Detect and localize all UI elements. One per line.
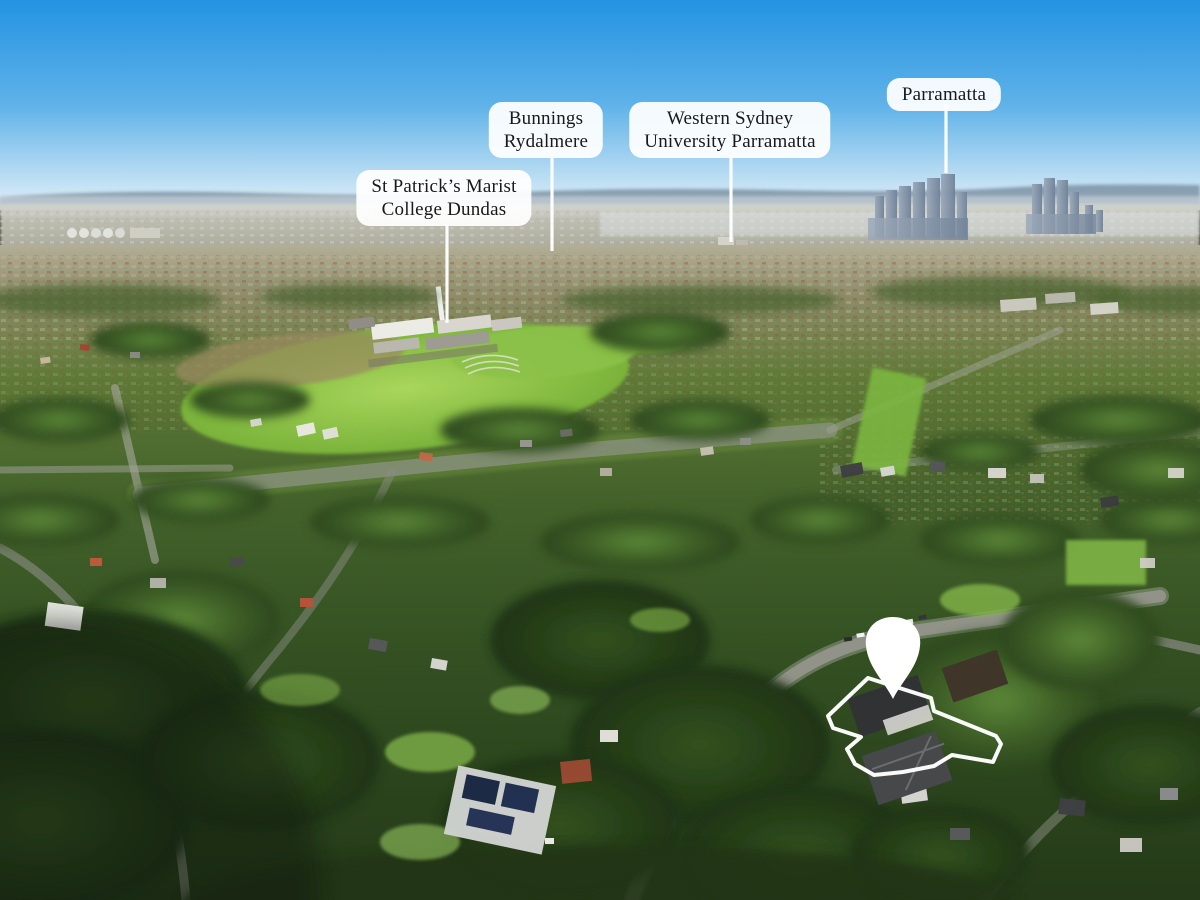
label-bunnings-rydalmere: Bunnings Rydalmere bbox=[489, 102, 603, 158]
label-line-2: College Dundas bbox=[371, 198, 516, 221]
label-western-sydney-university: Western Sydney University Parramatta bbox=[629, 102, 830, 158]
label-st-patricks-marist-college: St Patrick’s Marist College Dundas bbox=[356, 170, 531, 226]
property-boundary-outline bbox=[828, 678, 1001, 775]
property-pin-icon bbox=[866, 617, 920, 699]
label-line-1: Parramatta bbox=[902, 83, 986, 106]
label-line-2: Rydalmere bbox=[504, 130, 588, 153]
aerial-photo-scene: St Patrick’s Marist College Dundas Bunni… bbox=[0, 0, 1200, 900]
label-parramatta: Parramatta bbox=[887, 78, 1001, 111]
label-line-1: St Patrick’s Marist bbox=[371, 175, 516, 198]
label-line-2: University Parramatta bbox=[644, 130, 815, 153]
label-line-1: Bunnings bbox=[504, 107, 588, 130]
label-line-1: Western Sydney bbox=[644, 107, 815, 130]
